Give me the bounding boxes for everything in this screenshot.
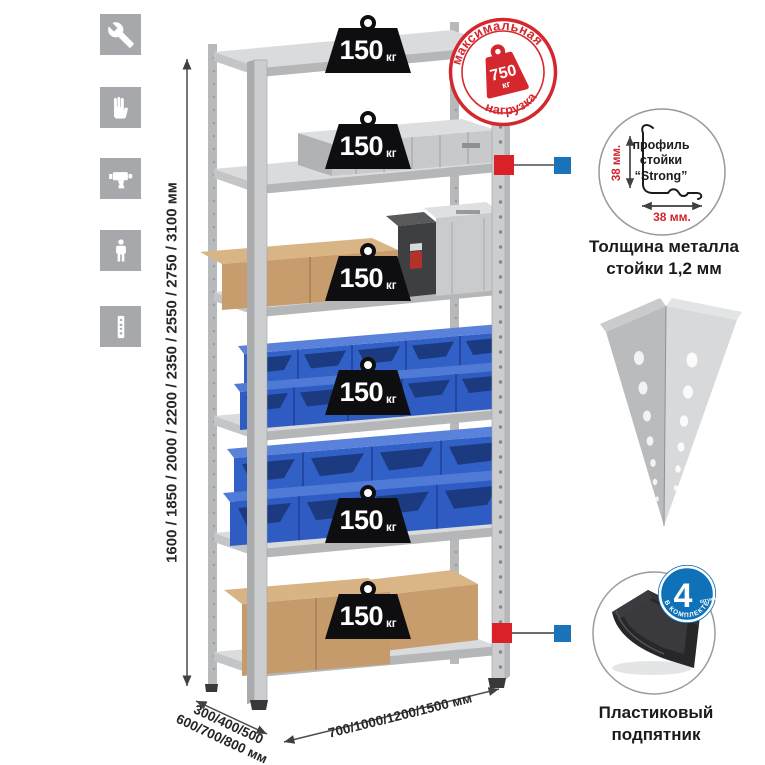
shelf-load-badge-1: 150кг (325, 15, 411, 73)
profile-callout-connector (494, 155, 571, 175)
wrench-icon (100, 14, 141, 55)
kit-count-badge: 4 штуки в комплекте (658, 565, 716, 622)
profile-horizontal-dimension: 38 мм. (653, 210, 691, 224)
height-dimension-label: 1600 / 1850 / 2000 / 2200 / 2350 / 2550 … (164, 133, 181, 613)
shelf-load-value: 150 (339, 131, 383, 162)
shelf-load-unit: кг (386, 394, 397, 406)
profile-vertical-dimension: 38 мм. (611, 145, 623, 181)
profile-label-line3: “Strong” (635, 169, 688, 183)
profile-detail-circle: 38 мм. 38 мм. профиль стойки “Strong” (599, 109, 725, 235)
shelf-load-badge-2: 150кг (325, 111, 411, 169)
foot-caption-line1: Пластиковый (564, 702, 748, 724)
foot-caption-line2: подпятник (564, 724, 748, 746)
drill-icon (100, 158, 141, 199)
product-infographic: 38 мм. 38 мм. профиль стойки “Strong” (0, 0, 765, 765)
person-icon (100, 230, 141, 271)
corner-post-render (600, 298, 742, 526)
shelf-load-value: 150 (339, 601, 383, 632)
shelf-load-value: 150 (339, 263, 383, 294)
shelf-load-value: 150 (339, 377, 383, 408)
shelf-load-badge-6: 150кг (325, 581, 411, 639)
shelf-load-badge-3: 150кг (325, 243, 411, 301)
profile-label-line2: стойки (640, 153, 682, 167)
gloves-icon (100, 87, 141, 128)
shelf-load-unit: кг (386, 52, 397, 64)
profile-caption-line1: Толщина металла (572, 236, 756, 258)
shelf-load-badge-5: 150кг (325, 485, 411, 543)
foot-callout-connector (492, 623, 571, 643)
shelf-load-unit: кг (386, 148, 397, 160)
foot-caption: Пластиковый подпятник (564, 702, 748, 746)
profile-caption-line2: стойки 1,2 мм (572, 258, 756, 280)
shelf-load-unit: кг (386, 618, 397, 630)
rack-post-icon (100, 306, 141, 347)
profile-label-line1: профиль (632, 138, 689, 152)
shelf-load-unit: кг (386, 522, 397, 534)
shelf-load-value: 150 (339, 35, 383, 66)
profile-caption: Толщина металла стойки 1,2 мм (572, 236, 756, 280)
shelf-load-value: 150 (339, 505, 383, 536)
shelf-load-unit: кг (386, 280, 397, 292)
shelf-load-badge-4: 150кг (325, 357, 411, 415)
